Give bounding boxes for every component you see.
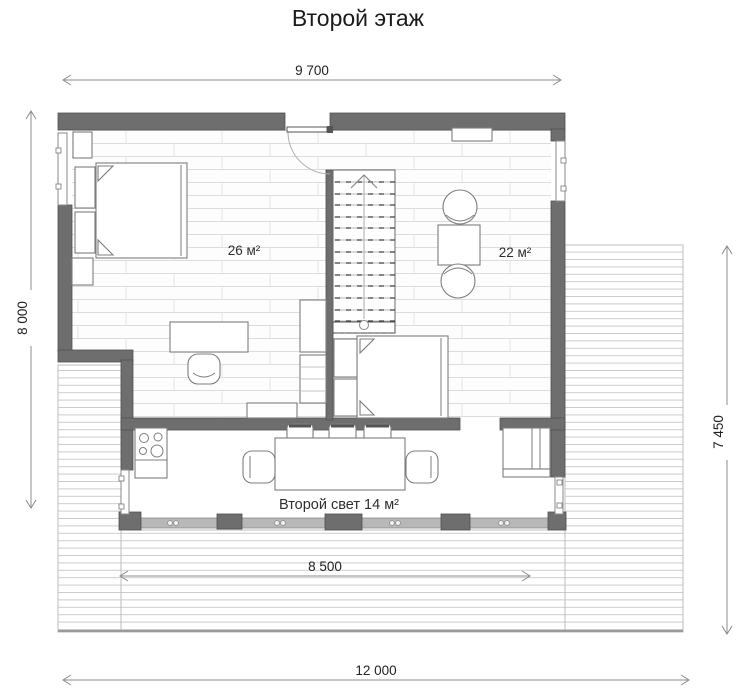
stairs-wall bbox=[326, 170, 333, 420]
dining-table bbox=[275, 438, 405, 490]
left-wall bbox=[58, 205, 72, 352]
lower-left-window-handle bbox=[119, 476, 124, 481]
railing-post-4 bbox=[441, 514, 470, 530]
nightstand bbox=[334, 379, 357, 416]
railing-post-2 bbox=[217, 514, 242, 529]
right-window-handle bbox=[561, 186, 566, 191]
dim-label-top: 9 700 bbox=[295, 63, 329, 78]
nightstand bbox=[75, 212, 95, 253]
bedroom-nook-furniture bbox=[334, 336, 448, 418]
console-table bbox=[452, 128, 492, 141]
dining-chair-left bbox=[243, 451, 275, 483]
top-wall-left bbox=[58, 113, 285, 130]
kitchen-dining bbox=[135, 424, 550, 490]
dresser bbox=[72, 258, 93, 285]
wardrobe bbox=[300, 300, 326, 352]
bed-double bbox=[96, 163, 187, 258]
desk-chair bbox=[188, 354, 220, 384]
armchair bbox=[441, 264, 475, 298]
lower-left-wall bbox=[121, 360, 133, 470]
armchair bbox=[443, 190, 477, 224]
stairs-walk-line-start bbox=[360, 321, 369, 330]
top-right-corner bbox=[551, 129, 565, 141]
right-window-upper bbox=[556, 141, 565, 201]
dim-label-right: 7 450 bbox=[711, 415, 726, 449]
door-leaf bbox=[287, 127, 327, 132]
dim-label-left: 8 000 bbox=[15, 301, 30, 335]
nightstand bbox=[75, 167, 95, 208]
top-wall-right bbox=[330, 113, 565, 130]
nightstand bbox=[334, 339, 357, 377]
page-title: Второй этаж bbox=[292, 5, 425, 31]
floor-plan-page: 9 700 8 000 7 450 8 500 12 000 Второй эт… bbox=[0, 0, 744, 700]
dim-label-terrace: 8 500 bbox=[308, 559, 342, 574]
right-window-handle bbox=[561, 158, 566, 163]
room-label-26: 26 м² bbox=[228, 243, 261, 258]
deck-right bbox=[565, 245, 683, 632]
deck-left bbox=[58, 365, 121, 632]
low-cabinet bbox=[247, 403, 297, 418]
deck-bottom bbox=[121, 530, 565, 632]
dim-label-total: 12 000 bbox=[355, 663, 396, 678]
left-window bbox=[58, 133, 67, 205]
railing-post-corner-right bbox=[548, 512, 566, 530]
railing-post-corner-left bbox=[119, 512, 141, 530]
right-wall bbox=[551, 201, 565, 477]
railing-post-3 bbox=[325, 514, 362, 530]
room-label-22: 22 м² bbox=[499, 245, 532, 260]
dining-chair-right bbox=[406, 451, 438, 483]
desk bbox=[170, 322, 248, 352]
counter-lip bbox=[503, 469, 550, 477]
floor-plan-drawing: 9 700 8 000 7 450 8 500 12 000 Второй эт… bbox=[0, 0, 744, 700]
door-hinge bbox=[327, 126, 333, 133]
lower-right-window-handle bbox=[557, 480, 562, 485]
bed-double bbox=[357, 336, 448, 418]
room-label-void: Второй свет 14 м² bbox=[279, 497, 399, 513]
counter-unit bbox=[503, 428, 550, 469]
lower-left-window-handle bbox=[119, 504, 124, 509]
dresser bbox=[73, 132, 92, 158]
left-window-handle bbox=[56, 184, 61, 189]
side-table bbox=[438, 225, 480, 265]
lower-right-window-handle bbox=[557, 503, 562, 508]
left-window-handle bbox=[56, 148, 61, 153]
staircase bbox=[333, 170, 395, 333]
